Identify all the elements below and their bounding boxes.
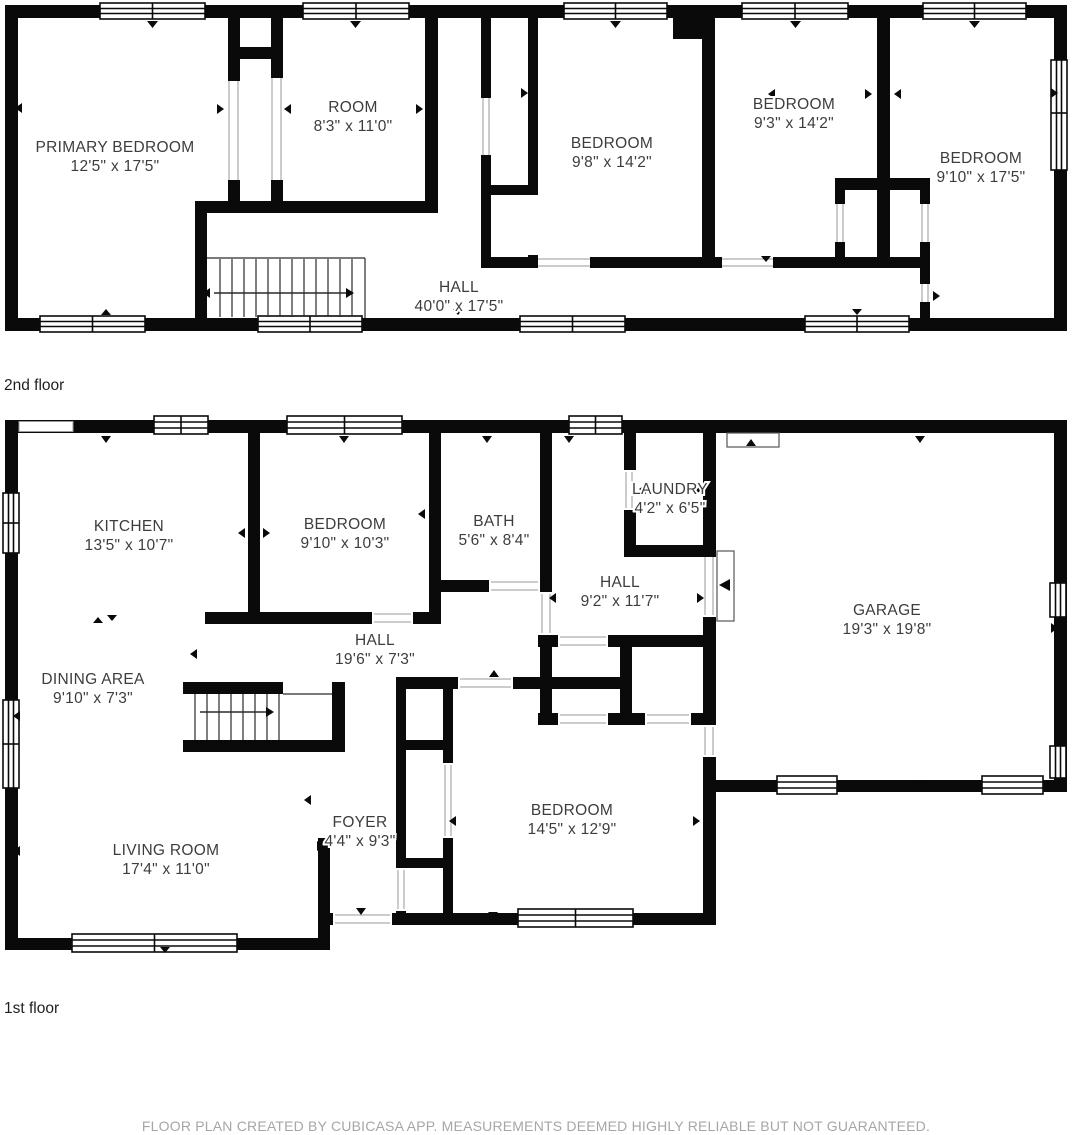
svg-text:ROOM: ROOM <box>328 99 377 116</box>
svg-text:4'2" x 6'5": 4'2" x 6'5" <box>634 500 705 517</box>
svg-text:HALL: HALL <box>355 632 395 649</box>
room-label-bath: BATH 5'6" x 8'4" <box>458 513 529 549</box>
svg-text:BEDROOM: BEDROOM <box>531 802 613 819</box>
room-label-living-room: LIVING ROOM 17'4" x 11'0" <box>113 842 220 878</box>
room-label-hall-2f: HALL 40'0" x 17'5" <box>415 279 504 315</box>
room-label-kitchen: KITCHEN 13'5" x 10'7" <box>85 518 174 554</box>
first-floor-stairs <box>195 694 332 740</box>
room-label-garage: GARAGE 19'3" x 19'8" <box>843 602 932 638</box>
room-label-laundry: LAUNDRY 4'2" x 6'5" <box>632 481 708 517</box>
svg-text:5'6" x 8'4": 5'6" x 8'4" <box>458 532 529 549</box>
svg-text:14'5" x 12'9": 14'5" x 12'9" <box>528 821 617 838</box>
svg-text:BEDROOM: BEDROOM <box>304 516 386 533</box>
svg-text:9'10" x 10'3": 9'10" x 10'3" <box>301 535 390 552</box>
svg-text:HALL: HALL <box>439 279 479 296</box>
second-floor-windows <box>40 3 1067 332</box>
first-floor-steps <box>717 433 779 621</box>
second-floor-walls <box>5 5 1067 331</box>
room-label-bedroom-145: BEDROOM 14'5" x 12'9" <box>528 802 617 838</box>
floor-plan-canvas: PRIMARY BEDROOM 12'5" x 17'5" ROOM 8'3" … <box>0 0 1072 1135</box>
room-label-bedroom-98: BEDROOM 9'8" x 14'2" <box>571 135 653 171</box>
svg-text:13'5" x 10'7": 13'5" x 10'7" <box>85 537 174 554</box>
first-floor-plan: KITCHEN 13'5" x 10'7" BEDROOM 9'10" x 10… <box>3 416 1067 1017</box>
svg-text:12'5" x 17'5": 12'5" x 17'5" <box>71 158 160 175</box>
room-label-dining-area: DINING AREA 9'10" x 7'3" <box>41 671 145 707</box>
svg-text:PRIMARY BEDROOM: PRIMARY BEDROOM <box>36 139 195 156</box>
svg-text:8'3" x 11'0": 8'3" x 11'0" <box>314 118 393 135</box>
second-floor-stairs <box>207 258 365 318</box>
second-floor-label: 2nd floor <box>4 377 64 394</box>
svg-text:LIVING ROOM: LIVING ROOM <box>113 842 220 859</box>
svg-text:FOYER: FOYER <box>333 814 388 831</box>
svg-text:HALL: HALL <box>600 574 640 591</box>
svg-text:BEDROOM: BEDROOM <box>571 135 653 152</box>
room-label-bedroom-910: BEDROOM 9'10" x 17'5" <box>937 150 1026 186</box>
svg-text:9'3" x 14'2": 9'3" x 14'2" <box>754 115 834 132</box>
svg-text:19'6" x 7'3": 19'6" x 7'3" <box>335 651 415 668</box>
floor-plan-page: PRIMARY BEDROOM 12'5" x 17'5" ROOM 8'3" … <box>0 0 1072 1135</box>
svg-text:GARAGE: GARAGE <box>853 602 921 619</box>
svg-text:BEDROOM: BEDROOM <box>753 96 835 113</box>
room-label-foyer: FOYER 4'4" x 9'3" <box>324 814 395 850</box>
svg-text:KITCHEN: KITCHEN <box>94 518 164 535</box>
first-floor-label: 1st floor <box>4 1000 59 1017</box>
footer-disclaimer: FLOOR PLAN CREATED BY CUBICASA APP. MEAS… <box>142 1118 930 1134</box>
second-floor-plan: PRIMARY BEDROOM 12'5" x 17'5" ROOM 8'3" … <box>4 3 1067 394</box>
svg-text:DINING AREA: DINING AREA <box>41 671 145 688</box>
svg-text:9'8" x 14'2": 9'8" x 14'2" <box>572 154 652 171</box>
svg-text:9'10" x 17'5": 9'10" x 17'5" <box>937 169 1026 186</box>
svg-text:40'0" x 17'5": 40'0" x 17'5" <box>415 298 504 315</box>
room-label-hall-196: HALL 19'6" x 7'3" <box>335 632 415 668</box>
svg-text:17'4" x 11'0": 17'4" x 11'0" <box>122 861 210 878</box>
room-label-hall-92: HALL 9'2" x 11'7" <box>581 574 660 610</box>
room-label-bedroom-910-103: BEDROOM 9'10" x 10'3" <box>301 516 390 552</box>
room-label-bedroom-93: BEDROOM 9'3" x 14'2" <box>753 96 835 132</box>
svg-text:9'2" x 11'7": 9'2" x 11'7" <box>581 593 660 610</box>
svg-text:LAUNDRY: LAUNDRY <box>632 481 708 498</box>
svg-text:19'3" x 19'8": 19'3" x 19'8" <box>843 621 932 638</box>
svg-text:BEDROOM: BEDROOM <box>940 150 1022 167</box>
svg-text:BATH: BATH <box>473 513 514 530</box>
room-label-primary-bedroom: PRIMARY BEDROOM 12'5" x 17'5" <box>36 139 195 175</box>
room-label-room: ROOM 8'3" x 11'0" <box>314 99 393 135</box>
svg-text:4'4" x 9'3": 4'4" x 9'3" <box>324 833 395 850</box>
svg-text:9'10" x 7'3": 9'10" x 7'3" <box>53 690 133 707</box>
